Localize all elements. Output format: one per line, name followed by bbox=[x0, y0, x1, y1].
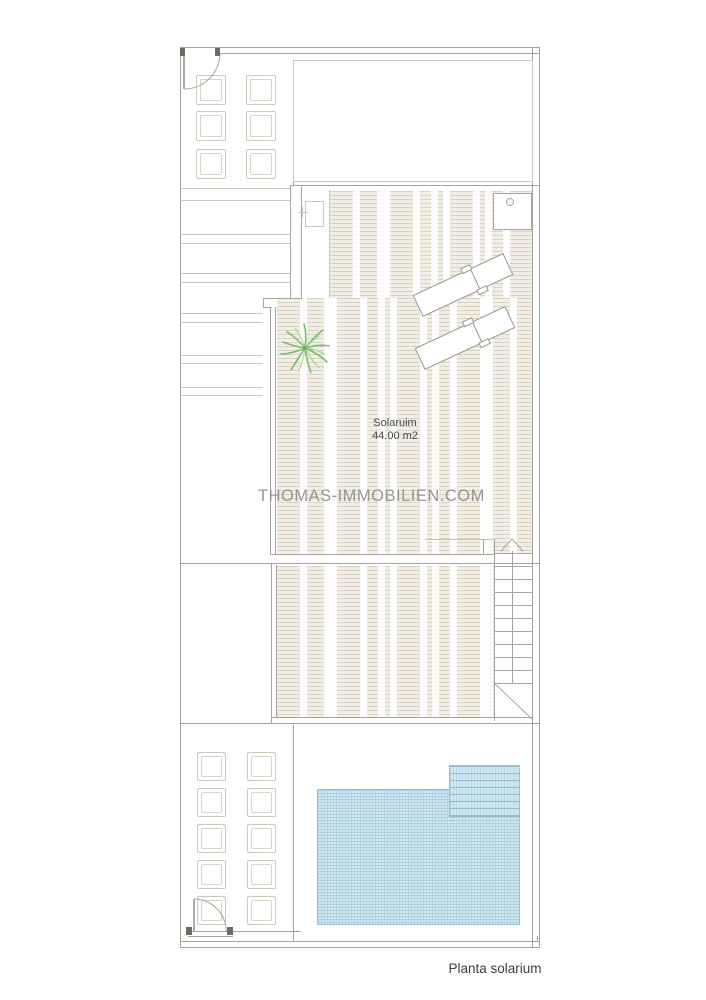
right-wall-outer bbox=[539, 47, 540, 948]
divider-bottom bbox=[293, 725, 294, 942]
top-wall-inner bbox=[218, 53, 540, 54]
room-name: Solaruim bbox=[330, 417, 460, 430]
pergola-square bbox=[247, 788, 276, 817]
solarium-top-wall bbox=[290, 185, 540, 186]
room-area: 44.00 m2 bbox=[330, 430, 460, 443]
terrace-step-line bbox=[180, 313, 263, 314]
lounger-backrest-line bbox=[472, 322, 482, 342]
lower-deck-left-wall-a bbox=[271, 563, 272, 724]
threshold-line-short bbox=[188, 936, 233, 937]
palm-plant-icon bbox=[277, 320, 333, 376]
bottom-right-tick bbox=[537, 936, 538, 942]
deck-notch-h bbox=[425, 539, 495, 540]
terrace-step-line bbox=[180, 200, 290, 201]
pergola-square bbox=[246, 75, 276, 105]
room-label: Solaruim 44.00 m2 bbox=[330, 417, 460, 443]
lower-deck-left-wall-b bbox=[276, 565, 277, 718]
left-wall bbox=[180, 47, 181, 948]
deck-step-h1 bbox=[263, 298, 302, 299]
window-cross-h bbox=[298, 212, 308, 213]
top-wall-outer bbox=[180, 47, 540, 48]
solarium-bottom-wall bbox=[270, 554, 495, 555]
right-wall-inner bbox=[532, 47, 533, 948]
terrace-step-line bbox=[180, 273, 290, 274]
floorplan-canvas: Solaruim 44.00 m2 THOMAS-IMMOBILIEN.COM … bbox=[0, 0, 706, 1000]
bottom-wall-outer bbox=[180, 947, 540, 948]
plan-caption: Planta solarium bbox=[420, 961, 570, 976]
pergola-square bbox=[197, 752, 226, 781]
terrace-step-line bbox=[180, 188, 290, 189]
terrace-step-line bbox=[180, 282, 290, 283]
pergola-square bbox=[247, 752, 276, 781]
stair-arrow-and-cut bbox=[490, 535, 536, 725]
pergola-square bbox=[197, 788, 226, 817]
terrace-step-line bbox=[180, 355, 263, 356]
terrace-step-line bbox=[180, 363, 263, 364]
pergola-square bbox=[197, 860, 226, 889]
door-hinge bbox=[186, 927, 192, 935]
pergola-square bbox=[246, 111, 276, 141]
pergola-square bbox=[247, 860, 276, 889]
mid-cross-wall bbox=[180, 563, 540, 564]
threshold-line-long bbox=[188, 931, 301, 932]
solarium-left-wall-outer bbox=[290, 185, 291, 299]
deck-notch-v bbox=[483, 539, 484, 555]
pergola-square bbox=[247, 896, 276, 925]
pergola-square bbox=[246, 149, 276, 179]
door-hinge bbox=[227, 927, 233, 935]
pergola-square bbox=[196, 149, 226, 179]
pool-steps bbox=[449, 765, 520, 817]
terrace-step-line bbox=[180, 395, 263, 396]
lower-deck bbox=[277, 566, 494, 717]
watermark: THOMAS-IMMOBILIEN.COM bbox=[258, 487, 485, 506]
pool-step-edge bbox=[449, 801, 518, 802]
deck-left-wall-b bbox=[275, 307, 276, 555]
solarium-left-wall-inner bbox=[301, 185, 302, 299]
vent-circle-icon bbox=[506, 198, 514, 206]
window-cross-v bbox=[302, 207, 303, 217]
solarium-ledge-line bbox=[329, 190, 330, 298]
terrace-step-line bbox=[180, 387, 263, 388]
pergola-square bbox=[196, 111, 226, 141]
door-hinge bbox=[180, 48, 185, 56]
window-marker bbox=[305, 201, 324, 227]
pergola-square bbox=[197, 824, 226, 853]
deck-left-wall-a bbox=[270, 307, 271, 555]
terrace-step-line bbox=[180, 322, 263, 323]
terrace-step-line bbox=[180, 234, 290, 235]
top-right-room bbox=[293, 60, 533, 182]
pergola-square bbox=[247, 824, 276, 853]
bottom-wall-inner bbox=[180, 941, 540, 942]
terrace-cross-wall bbox=[180, 723, 540, 724]
lounger-backrest-line bbox=[470, 269, 480, 289]
door-hinge bbox=[215, 48, 220, 56]
terrace-step-line bbox=[180, 243, 290, 244]
